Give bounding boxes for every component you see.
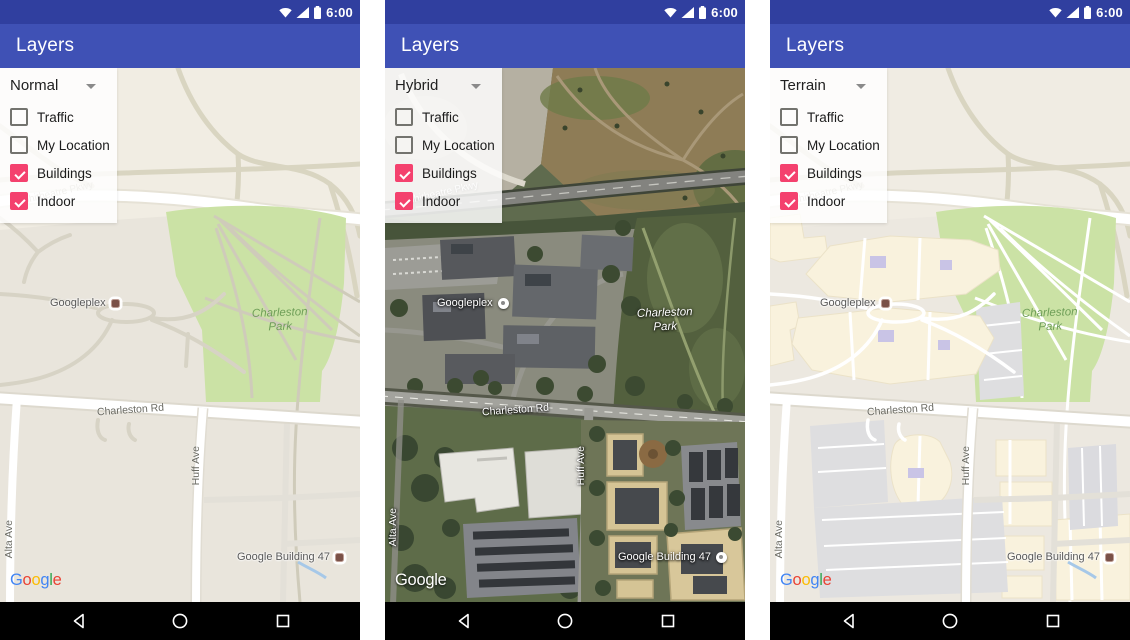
map-label-googleplex: Googleplex (437, 297, 509, 309)
buildings-checkbox[interactable] (780, 164, 798, 182)
map-type-value: Hybrid (395, 77, 438, 94)
checkbox-traffic[interactable]: Traffic (395, 108, 502, 126)
poi-marker-icon (881, 299, 890, 308)
checkbox-indoor[interactable]: Indoor (395, 192, 502, 210)
map-label-googleplex: Googleplex (50, 297, 120, 309)
poi-marker-icon (111, 299, 120, 308)
phone-normal: 6:00 Layers (0, 0, 360, 640)
map-label-huff-ave: Huff Ave (575, 446, 587, 485)
traffic-checkbox[interactable] (780, 108, 798, 126)
checkbox-indoor[interactable]: Indoor (10, 192, 117, 210)
phone-terrain: 6:00 Layers (770, 0, 1130, 640)
cellular-icon (1066, 7, 1079, 18)
map-label-charleston-park: Charleston Park (1010, 305, 1091, 337)
back-icon[interactable] (840, 612, 858, 630)
status-time: 6:00 (326, 5, 353, 20)
back-icon[interactable] (70, 612, 88, 630)
my-location-checkbox[interactable] (395, 136, 413, 154)
poi-marker-icon (1105, 553, 1114, 562)
battery-icon (313, 6, 322, 19)
map-label-charleston-park: Charleston Park (625, 305, 706, 337)
status-bar: 6:00 (385, 0, 745, 24)
map-normal[interactable]: Amphitheatre Pkwy Googleplex Charleston … (0, 68, 360, 602)
map-type-spinner[interactable]: Terrain (780, 73, 866, 98)
poi-marker-icon (498, 298, 509, 309)
status-time: 6:00 (711, 5, 738, 20)
navigation-bar (0, 602, 360, 640)
status-bar: 6:00 (770, 0, 1130, 24)
battery-icon (1083, 6, 1092, 19)
checkbox-traffic[interactable]: Traffic (10, 108, 117, 126)
app-bar: Layers (770, 24, 1130, 68)
buildings-checkbox[interactable] (10, 164, 28, 182)
map-hybrid[interactable]: Amphitheatre Pkwy Googleplex Charleston … (385, 68, 745, 602)
map-terrain[interactable]: Amphitheatre Pkwy Googleplex Charleston … (770, 68, 1130, 602)
chevron-down-icon (471, 84, 481, 89)
cellular-icon (296, 7, 309, 18)
poi-marker-icon (335, 553, 344, 562)
traffic-checkbox[interactable] (10, 108, 28, 126)
checkbox-my-location[interactable]: My Location (10, 136, 117, 154)
buildings-checkbox[interactable] (395, 164, 413, 182)
chevron-down-icon (856, 84, 866, 89)
battery-icon (698, 6, 707, 19)
google-logo: Google (10, 571, 61, 590)
map-label-google-building-47: Google Building 47 (1007, 551, 1114, 563)
recents-icon[interactable] (274, 612, 292, 630)
navigation-bar (770, 602, 1130, 640)
wifi-icon (1049, 7, 1062, 18)
indoor-checkbox[interactable] (10, 192, 28, 210)
home-icon[interactable] (171, 612, 189, 630)
recents-icon[interactable] (1044, 612, 1062, 630)
poi-marker-icon (716, 552, 727, 563)
checkbox-buildings[interactable]: Buildings (10, 164, 117, 182)
checkbox-my-location[interactable]: My Location (780, 136, 887, 154)
checkbox-my-location[interactable]: My Location (395, 136, 502, 154)
wifi-icon (664, 7, 677, 18)
map-label-huff-ave: Huff Ave (960, 446, 972, 485)
cellular-icon (681, 7, 694, 18)
home-icon[interactable] (556, 612, 574, 630)
recents-icon[interactable] (659, 612, 677, 630)
map-type-spinner[interactable]: Hybrid (395, 73, 481, 98)
indoor-checkbox[interactable] (780, 192, 798, 210)
traffic-checkbox[interactable] (395, 108, 413, 126)
map-type-spinner[interactable]: Normal (10, 73, 96, 98)
map-label-google-building-47: Google Building 47 (237, 551, 344, 563)
phone-hybrid: 6:00 Layers (385, 0, 745, 640)
google-logo: Google (780, 571, 831, 590)
chevron-down-icon (86, 84, 96, 89)
page-title: Layers (786, 35, 844, 57)
screenshot-root: 6:00 Layers (0, 0, 1130, 640)
map-type-value: Terrain (780, 77, 826, 94)
layers-panel: Terrain Traffic My Location Buildings (770, 68, 887, 223)
map-label-huff-ave: Huff Ave (190, 446, 202, 485)
checkbox-indoor[interactable]: Indoor (780, 192, 887, 210)
back-icon[interactable] (455, 612, 473, 630)
checkbox-buildings[interactable]: Buildings (395, 164, 502, 182)
my-location-checkbox[interactable] (780, 136, 798, 154)
app-bar: Layers (385, 24, 745, 68)
layers-panel: Hybrid Traffic My Location Buildings (385, 68, 502, 223)
map-label-alta-ave: Alta Ave (773, 520, 785, 558)
status-bar: 6:00 (0, 0, 360, 24)
page-title: Layers (401, 35, 459, 57)
navigation-bar (385, 602, 745, 640)
home-icon[interactable] (941, 612, 959, 630)
map-type-value: Normal (10, 77, 58, 94)
google-logo: Google (395, 571, 446, 590)
page-title: Layers (16, 35, 74, 57)
app-bar: Layers (0, 24, 360, 68)
checkbox-traffic[interactable]: Traffic (780, 108, 887, 126)
map-label-googleplex: Googleplex (820, 297, 890, 309)
my-location-checkbox[interactable] (10, 136, 28, 154)
map-label-alta-ave: Alta Ave (387, 508, 399, 546)
wifi-icon (279, 7, 292, 18)
checkbox-buildings[interactable]: Buildings (780, 164, 887, 182)
map-label-alta-ave: Alta Ave (3, 520, 15, 558)
indoor-checkbox[interactable] (395, 192, 413, 210)
map-label-charleston-park: Charleston Park (240, 305, 321, 337)
map-label-google-building-47: Google Building 47 (618, 551, 727, 563)
status-time: 6:00 (1096, 5, 1123, 20)
layers-panel: Normal Traffic My Location Buildings (0, 68, 117, 223)
